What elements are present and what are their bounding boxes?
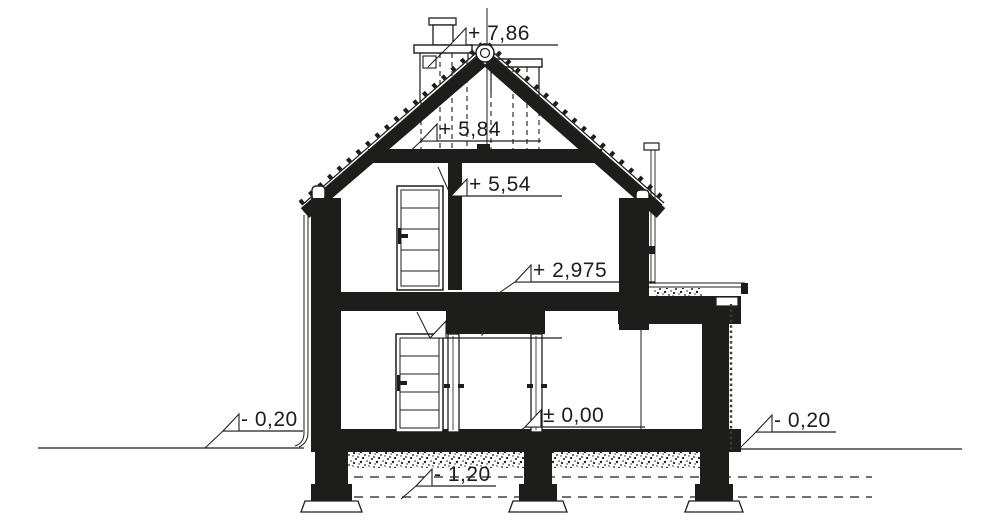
right-verge-cap bbox=[644, 143, 659, 150]
attic-slab-vent bbox=[477, 144, 490, 151]
section-canvas: + 7,86 + 5,84 + 5,54 + 2,975 + 2,645 ± 0… bbox=[0, 0, 1000, 522]
level-label: + 2,975 bbox=[533, 259, 607, 282]
annex-right-wall bbox=[702, 296, 729, 452]
footings bbox=[311, 484, 733, 501]
ridge-cap bbox=[476, 44, 494, 62]
level-label: + 5,84 bbox=[439, 118, 501, 141]
facade-anchor-tick bbox=[648, 246, 655, 254]
level-marker-terrain-left: - 0,20 bbox=[205, 408, 303, 448]
ground-floor-slab bbox=[311, 429, 741, 452]
footing-bases bbox=[301, 501, 743, 512]
building-section-drawing: + 7,86 + 5,84 + 5,54 + 2,975 + 2,645 ± 0… bbox=[0, 0, 1000, 522]
attic-floor-slab bbox=[368, 149, 602, 163]
right-facade-lines bbox=[651, 150, 655, 284]
annex-roof-end-cap bbox=[741, 283, 748, 294]
level-label: - 0,20 bbox=[774, 409, 831, 432]
level-label: + 5,54 bbox=[469, 173, 531, 196]
gutter-left bbox=[312, 186, 325, 200]
level-label: - 1,20 bbox=[434, 463, 491, 486]
upper-interior-wall bbox=[448, 163, 462, 290]
level-label: + 2,645 bbox=[448, 315, 522, 338]
ground-floor-door bbox=[396, 334, 443, 432]
upper-floor-door bbox=[397, 186, 443, 290]
intermediate-floor-slab bbox=[311, 292, 628, 311]
annex-roof-trim bbox=[716, 297, 738, 306]
level-label: + 7,86 bbox=[468, 22, 530, 45]
annex-roof-edge-lines bbox=[649, 283, 745, 287]
level-marker-foundation: - 1,20 bbox=[401, 463, 496, 499]
level-label: ± 0,00 bbox=[543, 404, 604, 427]
subfloor-gravel-hatch bbox=[341, 452, 700, 468]
annex-roof-insulation-hatch bbox=[654, 288, 702, 299]
level-marker-terrain-right: - 0,20 bbox=[739, 409, 836, 449]
left-exterior-wall bbox=[311, 198, 341, 432]
door-leaf-section-left bbox=[444, 334, 464, 432]
level-label: - 0,20 bbox=[241, 408, 298, 431]
